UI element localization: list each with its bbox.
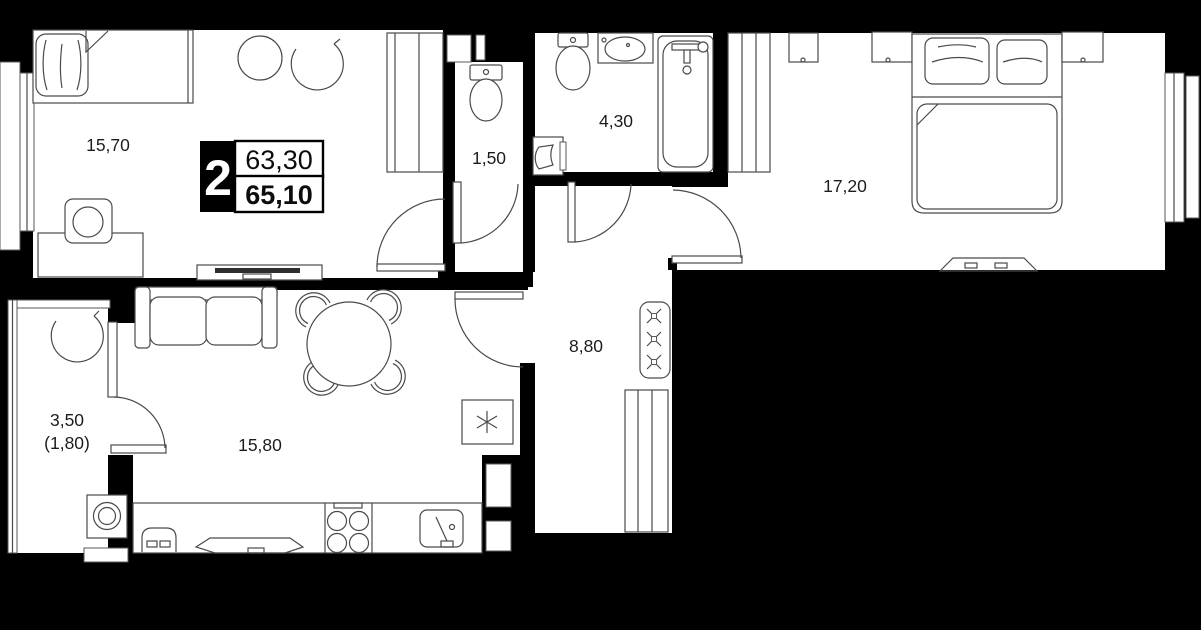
balcony-notch: [84, 548, 128, 562]
toilet-icon: [470, 65, 502, 121]
nightstand-icon: [872, 32, 912, 62]
duct-shaft-icon: [486, 521, 511, 551]
tv-stand-icon: [197, 265, 322, 280]
door-leaf-kitchen: [455, 292, 523, 299]
room-label-bedroom-1: 15,70: [86, 135, 130, 155]
vent-shaft-icon: [447, 35, 471, 62]
door-leaf-bathroom: [568, 182, 575, 242]
room-label-balcony: 3,50: [50, 410, 84, 430]
badge-area-lower: 65,10: [245, 180, 313, 210]
badge-area-upper: 63,30: [245, 145, 313, 175]
kitchen-sink-icon: [420, 510, 463, 547]
room-label-balcony-reduced: (1,80): [44, 433, 90, 453]
floor-plan-svg: 15,70 1,50 4,30 17,20 8,80 15,80 3,50 (1…: [0, 0, 1201, 630]
water-heater-icon: [533, 137, 566, 175]
room-label-bedroom-2: 17,20: [823, 176, 867, 196]
badge-room-count: 2: [204, 150, 232, 206]
washing-machine-icon: [87, 495, 127, 538]
balcony-glazing-top: [17, 300, 110, 308]
door-leaf-bedroom-2: [672, 256, 742, 263]
cabinet-icon: [789, 33, 818, 62]
duct-shaft-icon: [486, 464, 511, 507]
chair-icon: [65, 199, 112, 243]
coat-hooks-icon: [640, 302, 670, 378]
wall-balcony-stub-top: [108, 287, 137, 323]
room-label-kitchen-living: 15,80: [238, 435, 282, 455]
wardrobe-icon: [387, 33, 443, 172]
window-right-sill: [1186, 76, 1199, 218]
bathtub-icon: [658, 36, 713, 172]
door-leaf-balcony: [111, 445, 166, 453]
room-label-wc: 1,50: [472, 148, 506, 168]
single-bed-icon: [33, 30, 193, 103]
wall-bedroom1-wc: [443, 62, 455, 278]
nightstand-icon: [1062, 32, 1103, 62]
room-label-hallway: 8,80: [569, 336, 603, 356]
washbasin-icon: [598, 33, 653, 63]
door-leaf-wc: [453, 182, 461, 243]
toilet-icon: [556, 33, 590, 90]
wardrobe-icon: [728, 33, 770, 172]
wardrobe-icon: [625, 390, 668, 532]
room-label-bathroom: 4,30: [599, 111, 633, 131]
door-leaf-bedroom-1: [377, 264, 445, 271]
fridge-icon: [462, 400, 513, 444]
wall-bathroom-bedroom2: [713, 33, 728, 177]
vent-shaft-icon: [476, 35, 485, 60]
floor-plan-canvas: 15,70 1,50 4,30 17,20 8,80 15,80 3,50 (1…: [0, 0, 1201, 630]
wc-fixtures: [470, 65, 502, 121]
window-left-sill: [0, 62, 20, 250]
double-bed-icon: [912, 34, 1062, 213]
sofa-icon: [135, 287, 277, 348]
balcony-fixed-panel: [108, 322, 117, 397]
apartment-info-badge: 2 63,30 65,10: [200, 141, 323, 212]
